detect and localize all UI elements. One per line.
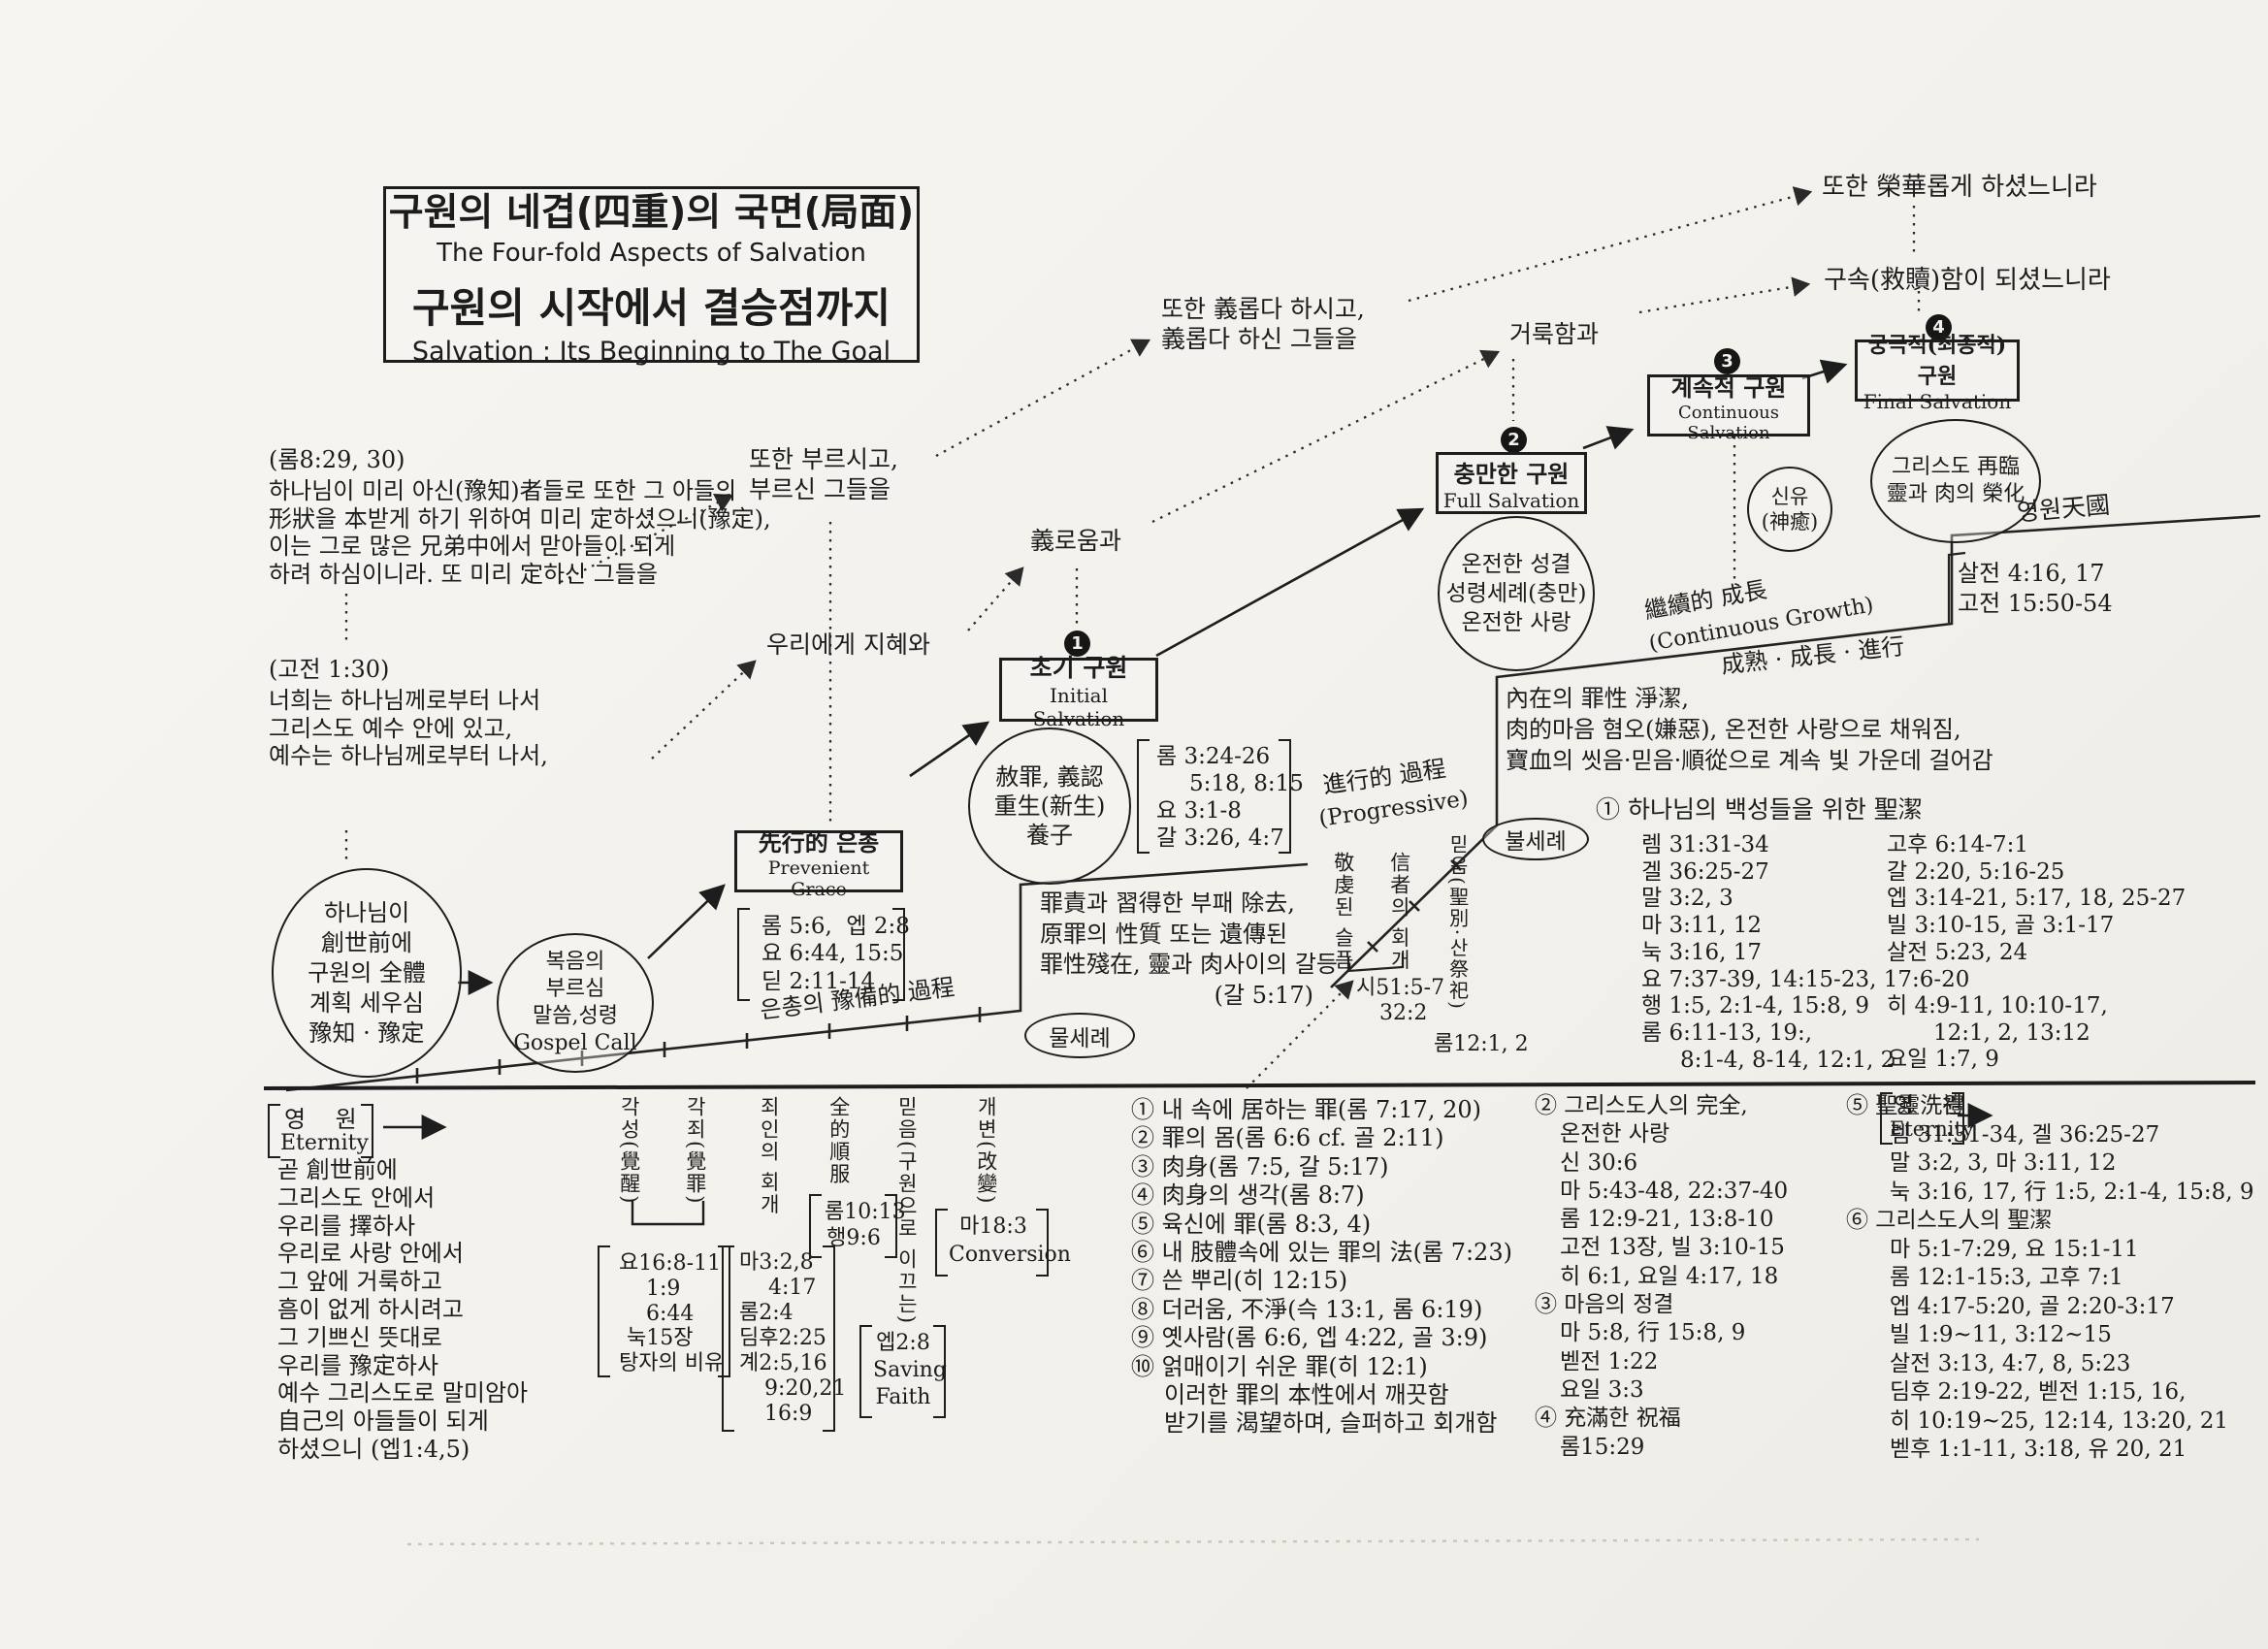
list-item: 義롭다 하신 그들을 [1161, 324, 1365, 354]
prevenient-en: Prevenient Grace [737, 857, 900, 900]
final-salvation-box: 궁극적(최종적) 구원 Final Salvation [1855, 339, 2020, 402]
water-baptism-label: 물세례 [1026, 1019, 1133, 1052]
bracket-left [737, 908, 750, 1001]
rom8-quote: 하나님이 미리 아신(豫知)者들로 또한 그 아들의形狀을 本받게 하기 위하여… [269, 477, 771, 588]
list-item: 마 5:43-48, 22:37-40 [1560, 1178, 1788, 1206]
gospel-call-oval: 복음의부르심말씀,성령Gospel Call [497, 933, 654, 1073]
holiness-text: 거룩함과 [1509, 320, 1599, 349]
indwelling-sin-list: ① 내 속에 居하는 罪(롬 7:17, 20)② 罪의 몸(롬 6:6 cf.… [1131, 1096, 1512, 1439]
cor1-quote: 너희는 하나님께로부터 나서그리스도 예수 안에 있고,예수는 하나님께로부터 … [269, 687, 548, 770]
prevenient-ko: 先行的 은총 [737, 824, 900, 857]
title-english: The Four-fold Aspects of Salvation [386, 239, 917, 268]
scanned-diagram-page: 구원의 네겹(四重)의 국면(局面) The Four-fold Aspects… [0, 0, 2268, 1649]
list-item: 온전한 성결 [1440, 550, 1593, 579]
list-item: 말 3:2, 3, 마 3:11, 12 [1890, 1149, 2254, 1179]
list-item: 살전 5:23, 24 [1887, 940, 2186, 967]
stage-4-ko: 궁극적(최종적) 구원 [1858, 328, 2017, 390]
faith-consecration-vertical: 믿음(聖別·산祭祀) [1445, 834, 1469, 1028]
list-item: 딤후 2:19-22, 벧전 1:15, 16, [1890, 1378, 2254, 1407]
list-item: 신유 [1749, 484, 1831, 509]
list-item: 시51:5-7 [1356, 976, 1444, 1001]
list-item: 마 5:8, 行 15:8, 9 [1560, 1319, 1788, 1347]
sanctification-verses-right-cont: 히 4:9-11, 10:10-17,12:1, 2, 13:12요일 1:7,… [1887, 993, 2108, 1074]
sanctification-verses-right: 고후 6:14-7:1갈 2:20, 5:16-25엡 3:14-21, 5:1… [1887, 832, 2186, 967]
list-item: 신 30:6 [1560, 1149, 1788, 1178]
list-item: 1:9 [646, 1277, 724, 1302]
list-item: Faith [873, 1384, 933, 1411]
list-item: 罪性殘在, 靈과 肉사이의 갈등 [1040, 950, 1313, 981]
full-grace-oval: 온전한 성결성령세례(충만)온전한 사랑 [1438, 516, 1595, 671]
spirit-baptism-column: ⑤ 聖靈洗禮렘 31:31-34, 겔 36:25-27말 3:2, 3, 마 … [1846, 1092, 2254, 1465]
list-item: ⑩ 얽매이기 쉬운 罪(히 12:1) [1131, 1353, 1512, 1381]
list-item: 그리스도 再臨 [1872, 454, 2039, 481]
stage-3-en: Continuous Salvation [1650, 403, 1807, 443]
final-salvation-verses: 살전 4:16, 17고전 15:50-54 [1958, 559, 2113, 619]
list-item: Saving [873, 1357, 933, 1384]
list-item: 말씀,성령 [499, 1003, 652, 1030]
list-item: 온전한 사랑 [1440, 608, 1593, 637]
awakening-vertical: 각성(覺醒) [617, 1096, 641, 1227]
divine-healing-circle: 신유(神癒) [1747, 467, 1832, 552]
sorrow-references: 시51:5-732:2 [1356, 976, 1444, 1026]
list-item: 重生(新生) [970, 792, 1129, 821]
list-item: (갈 5:17) [1040, 981, 1313, 1012]
surrender-verses: 롬10:13행9:6 [825, 1199, 883, 1251]
perfection-column: ② 그리스도人의 完全,온전한 사랑신 30:6마 5:43-48, 22:37… [1535, 1092, 1788, 1462]
list-item: ④ 肉身의 생각(롬 8:7) [1131, 1181, 1512, 1210]
godly-sorrow-vertical: 敬虔된 슬픔 [1331, 852, 1355, 983]
stage-4-en: Final Salvation [1858, 390, 2017, 413]
list-item: 롬15:29 [1560, 1434, 1788, 1462]
bracket-right [823, 1245, 835, 1432]
subtitle-english: Salvation : Its Beginning to The Goal [386, 337, 917, 367]
list-item: 계획 세우심 [274, 988, 460, 1018]
list-item: 예수 그리스도로 말미암아 [277, 1379, 528, 1407]
list-item: 우리를 豫定하사 [277, 1352, 528, 1380]
list-item: 롬 12:1-15:3, 고후 7:1 [1890, 1264, 2254, 1293]
list-item: 부르신 그들을 [749, 474, 898, 504]
bracket-right [1279, 739, 1291, 854]
list-item: ⑥ 내 肢體속에 있는 罪의 法(롬 7:23) [1131, 1239, 1512, 1267]
continuous-salvation-box: 계속적 구원 Continuous Salvation [1647, 374, 1810, 436]
list-item: 고전 13장, 빌 3:10-15 [1560, 1234, 1788, 1262]
list-item: 구원의 全體 [274, 958, 460, 988]
list-item: 또한 義롭다 하시고, [1161, 294, 1365, 324]
title-box: 구원의 네겹(四重)의 국면(局面) The Four-fold Aspects… [383, 186, 920, 363]
list-item: 하나님이 미리 아신(豫知)者들로 또한 그 아들의 [269, 477, 771, 505]
list-item: ⑤ 육신에 罪(롬 8:3, 4) [1131, 1211, 1512, 1239]
list-item: 또한 부르시고, [749, 444, 898, 474]
list-item: 복음의 [499, 949, 652, 976]
list-item: 하나님이 [274, 898, 460, 928]
list-item: ④ 充滿한 祝福 [1535, 1405, 1788, 1433]
list-item: 罪責과 習得한 부패 除去, [1040, 889, 1313, 920]
stage-2-en: Full Salvation [1439, 489, 1584, 512]
list-item: 요 6:44, 15:5 [761, 940, 910, 967]
list-item: 빌 3:10-15, 골 3:1-17 [1887, 913, 2186, 940]
list-item: 엡 4:17-5:20, 골 2:20-3:17 [1890, 1293, 2254, 1322]
fire-baptism-label: 불세례 [1484, 823, 1587, 856]
list-item: 이는 그로 많은 兄弟中에서 맏아들이 되게 [269, 533, 771, 561]
guilt-corruption-note: 罪責과 習得한 부패 除去,原罪의 性質 또는 遺傳된罪性殘在, 靈과 肉사이의… [1040, 889, 1313, 1011]
glorified-text: 또한 榮華롭게 하셨느니라 [1822, 173, 2097, 203]
eternal-plan-oval: 하나님이創世前에구원의 全體계획 세우심豫知 · 豫定 [272, 868, 462, 1078]
bracket-right [361, 1104, 373, 1158]
list-item: 32:2 [1379, 1001, 1444, 1026]
conversion-vertical: 개변(改變) [974, 1096, 998, 1232]
bracket-right [933, 1325, 946, 1418]
inner-cleansing-note: 內在의 罪性 淨潔,肉的마음 혐오(嫌惡), 온전한 사랑으로 채워짐,寶血의 … [1506, 683, 1993, 776]
list-item: 12:1, 2, 13:12 [1933, 1020, 2108, 1048]
eternity-left-en: Eternity [280, 1131, 369, 1156]
list-item: 엡2:8 [873, 1330, 933, 1357]
list-item: 롬10:13 [825, 1199, 883, 1225]
redeemed-text: 구속(救贖)함이 되셨느니라 [1824, 266, 2111, 296]
list-item: 그리스도 예수 안에 있고, [269, 715, 548, 743]
list-item: 創世前에 [274, 928, 460, 958]
bracket-left [1137, 739, 1150, 854]
list-item: 自己의 아들들이 되게 [277, 1407, 528, 1436]
stage-2-badge: 2 [1501, 427, 1527, 453]
list-item: Gospel Call [499, 1030, 652, 1057]
list-item: 그 앞에 거룩하고 [277, 1268, 528, 1296]
justified-text: 또한 義롭다 하시고,義롭다 하신 그들을 [1161, 294, 1365, 354]
list-item: ③ 마음의 정결 [1535, 1291, 1788, 1319]
list-item: 성령세례(충만) [1440, 579, 1593, 608]
list-item: ⑧ 더러움, 不淨(슥 13:1, 롬 6:19) [1131, 1296, 1512, 1324]
list-item: 요 7:37-39, 14:15-23, 17:6-20 [1641, 967, 1969, 994]
list-item: 그리스도 안에서 [277, 1184, 528, 1212]
list-item: (神癒) [1749, 509, 1831, 534]
conviction-vertical: 각죄(覺罪) [683, 1096, 707, 1227]
list-item: 히 6:1, 요일 4:17, 18 [1560, 1263, 1788, 1291]
list-item: 하셨으니 (엡1:4,5) [277, 1436, 528, 1464]
bracket-left [598, 1245, 610, 1377]
list-item: 눅15장 [627, 1326, 724, 1351]
list-item: 養子 [970, 821, 1129, 850]
list-item: ② 罪의 몸(롬 6:6 cf. 골 2:11) [1131, 1124, 1512, 1152]
bracket-left [809, 1194, 822, 1258]
list-item: 赦罪, 義認 [970, 762, 1129, 792]
list-item: 豫知 · 豫定 [274, 1018, 460, 1049]
stage-2-ko: 충만한 구원 [1439, 455, 1584, 489]
list-item: 그 기쁘신 뜻대로 [277, 1324, 528, 1352]
list-item: 살전 4:16, 17 [1958, 559, 2113, 589]
list-item: 롬 12:9-21, 13:8-10 [1560, 1206, 1788, 1234]
conversion-verses: 마18:3Conversion [949, 1212, 1038, 1269]
sanctification-heading: ① 하나님의 백성들을 위한 聖潔 [1596, 795, 1923, 824]
list-item: 肉的마음 혐오(嫌惡), 온전한 사랑으로 채워짐, [1506, 714, 1993, 745]
list-item: 롬 5:6, 엡 2:8 [761, 913, 910, 940]
stage-3-ko: 계속적 구원 [1650, 369, 1807, 403]
list-item: 부르심 [499, 976, 652, 1003]
full-salvation-box: 충만한 구원 Full Salvation [1436, 452, 1587, 514]
list-item: 곧 創世前에 [277, 1156, 528, 1184]
list-item: 벧전 1:22 [1560, 1348, 1788, 1376]
list-item: 靈과 肉의 榮化 [1872, 481, 2039, 508]
second-coming-oval: 그리스도 再臨靈과 肉의 榮化 [1870, 419, 2041, 543]
list-item: 탕자의 비유 [619, 1351, 724, 1376]
list-item: 흠이 없게 하시려고 [277, 1296, 528, 1324]
fire-baptism-oval: 불세례 [1482, 818, 1589, 860]
list-item: 살전 3:13, 4:7, 8, 5:23 [1890, 1350, 2254, 1379]
list-item: 마18:3 [949, 1212, 1038, 1241]
righteousness-text: 義로움과 [1030, 527, 1121, 556]
list-item: 우리로 사랑 안에서 [277, 1240, 528, 1268]
list-item: 하려 하심이니라. 또 미리 定하신 그들을 [269, 561, 771, 589]
list-item: 原罪의 性質 또는 遺傳된 [1040, 920, 1313, 951]
list-item: 갈 2:20, 5:16-25 [1887, 859, 2186, 887]
list-item: 요일 3:3 [1560, 1376, 1788, 1405]
rom8-reference: (롬8:29, 30) [269, 446, 405, 473]
bracket-left [859, 1325, 872, 1418]
list-item: 받기를 渴望하며, 슬퍼하고 회개함 [1164, 1409, 1512, 1438]
saving-faith-verses: 엡2:8SavingFaith [873, 1330, 933, 1411]
list-item: 너희는 하나님께로부터 나서 [269, 687, 548, 715]
list-item: 이러한 罪의 本性에서 깨끗함 [1164, 1381, 1512, 1409]
list-item: 마 5:1-7:29, 요 15:1-11 [1890, 1236, 2254, 1265]
bracket-right [1952, 1092, 1964, 1145]
called-text: 또한 부르시고,부르신 그들을 [749, 444, 898, 504]
bracket-left [722, 1245, 734, 1432]
title-korean: 구원의 네겹(四重)의 국면(局面) [386, 182, 917, 237]
prevenient-grace-box: 先行的 은총 Prevenient Grace [734, 830, 903, 892]
awakening-verses: 요16:8-111:96:44눅15장탕자의 비유 [619, 1251, 724, 1376]
list-item: 예수는 하나님께로부터 나서, [269, 742, 548, 770]
list-item: 內在의 罪性 淨潔, [1506, 683, 1993, 714]
wisdom-text: 우리에게 지혜와 [766, 630, 930, 660]
cor1-reference: (고전 1:30) [269, 656, 389, 683]
subtitle-korean: 구원의 시작에서 결승점까지 [386, 275, 917, 335]
bracket-right [1036, 1209, 1049, 1277]
ephesians-quote: 곧 創世前에그리스도 안에서우리를 擇하사우리로 사랑 안에서그 앞에 거룩하고… [277, 1156, 528, 1464]
initial-salvation-box: 초기 구원 Initial Salvation [999, 658, 1158, 722]
list-item: 온전한 사랑 [1560, 1120, 1788, 1148]
saving-faith-vertical: 믿음(구원으로 이끄는) [894, 1096, 919, 1324]
list-item: 形狀을 本받게 하기 위하여 미리 定하셨으니(豫定), [269, 505, 771, 533]
believer-repentance-vertical: 信者의 회개 [1387, 852, 1411, 983]
stage-1-en: Initial Salvation [1002, 684, 1155, 730]
list-item: 히 4:9-11, 10:10-17, [1887, 993, 2108, 1020]
list-item: ③ 肉身(롬 7:5, 갈 5:17) [1131, 1153, 1512, 1181]
list-item: ① 내 속에 居하는 罪(롬 7:17, 20) [1131, 1096, 1512, 1124]
list-item: ⑥ 그리스도人의 聖潔 [1846, 1207, 2254, 1236]
list-item: 엡 3:14-21, 5:17, 18, 25-27 [1887, 886, 2186, 913]
list-item: ⑨ 옛사람(롬 6:6, 엡 4:22, 골 3:9) [1131, 1324, 1512, 1352]
list-item: 고후 6:14-7:1 [1887, 832, 2186, 859]
list-item: 6:44 [646, 1302, 724, 1327]
list-item: 히 10:19~25, 12:14, 13:20, 21 [1890, 1407, 2254, 1437]
consecration-reference: 롬12:1, 2 [1434, 1032, 1529, 1057]
list-item: ② 그리스도人의 完全, [1535, 1092, 1788, 1120]
bracket-left [268, 1104, 280, 1158]
list-item: 고전 15:50-54 [1958, 589, 2113, 619]
list-item: 행9:6 [825, 1225, 883, 1251]
bracket-left [935, 1209, 948, 1277]
initial-grace-oval: 赦罪, 義認重生(新生)養子 [968, 727, 1131, 885]
sinner-repentance-vertical: 죄인의 회개 [757, 1096, 781, 1256]
list-item: 우리를 擇하사 [277, 1212, 528, 1241]
list-item: 빌 1:9~11, 3:12~15 [1890, 1321, 2254, 1350]
stage-1-ko: 초기 구원 [1002, 649, 1155, 684]
list-item: 요16:8-11 [619, 1251, 724, 1277]
list-item: ⑦ 쓴 뿌리(히 12:15) [1131, 1267, 1512, 1295]
eternity-left-ko: 영 원 [284, 1106, 357, 1133]
water-baptism-oval: 물세례 [1024, 1013, 1135, 1058]
list-item: 寶血의 씻음·믿음·順從으로 계속 빛 가운데 걸어감 [1506, 745, 1993, 776]
list-item: 벧후 1:1-11, 3:18, 유 20, 21 [1890, 1436, 2254, 1465]
list-item: 요일 1:7, 9 [1887, 1047, 2108, 1074]
list-item: Conversion [949, 1241, 1038, 1269]
list-item: 눅 3:16, 17, 行 1:5, 2:1-4, 15:8, 9 [1890, 1179, 2254, 1208]
